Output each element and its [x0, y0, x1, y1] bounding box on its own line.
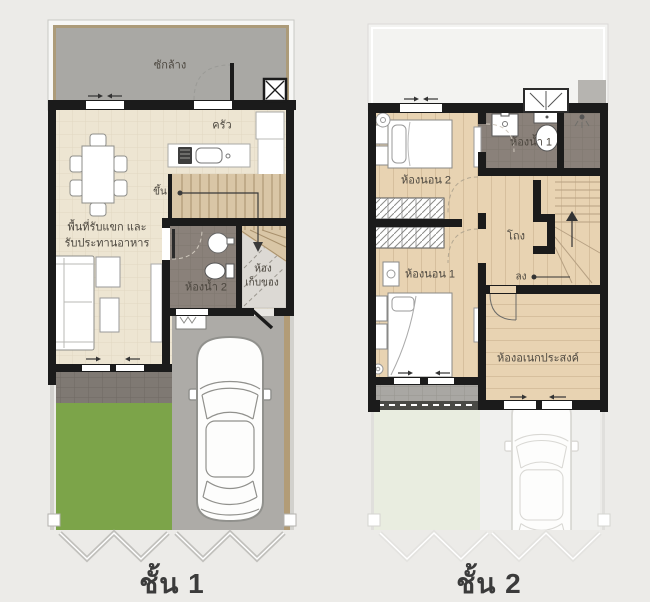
multipurpose-floor: [486, 294, 600, 400]
toilet-icon: [205, 263, 234, 279]
floorplan-canvas: ซักล้าง ครัว ขึ้น พื้นที่รับแขก และ รับป…: [0, 0, 650, 602]
fridge-icon: [256, 112, 284, 139]
floor2-plan: ห้องนอน 2 ห้องน้ำ 1 โถง ลง ห้องนอน 1 ห้อ…: [366, 17, 612, 602]
floor2-title: ชั้น 2: [366, 562, 612, 602]
terrace2: [374, 385, 478, 401]
kitchen-sink-icon: [196, 148, 222, 163]
living-dining-label-line2: รับประทานอาหาร: [65, 237, 150, 252]
stairs-down-label: ลง: [515, 270, 526, 285]
floor2-drawing: [366, 17, 612, 602]
open-to-below-area: [368, 24, 608, 110]
car-icon: [189, 337, 271, 521]
right-fence-line: [290, 316, 294, 530]
left-fence-line: [50, 385, 54, 530]
bedroom1-label: ห้องนอน 1: [405, 268, 455, 283]
laundry-sliding-door: [86, 101, 124, 109]
bathroom2-room: [170, 226, 236, 308]
multipurpose-window-1: [504, 401, 536, 409]
fan-icon-bedroom2: [376, 113, 390, 127]
living-dining-label-line1: พื้นที่รับแขก และ: [68, 221, 147, 236]
gate-post-left: [48, 514, 60, 526]
floor1-drawing: [46, 17, 298, 602]
kitchen-label: ครัว: [212, 119, 231, 134]
lawn: [56, 403, 172, 530]
bathroom1-label: ห้องน้ำ 1: [510, 136, 552, 151]
bedroom2-label: ห้องนอน 2: [401, 174, 451, 189]
gate-post-left2: [368, 514, 380, 526]
driveway-fence: [284, 316, 290, 530]
stairs-up-label: ขึ้น: [153, 185, 167, 200]
stairs-down-marker: [532, 275, 537, 280]
hall-label: โถง: [507, 230, 525, 245]
laundry-label: ซักล้าง: [154, 59, 186, 74]
folding-gate-left: [60, 533, 168, 559]
bathroom1-window: [524, 89, 568, 112]
multipurpose-label: ห้องอเนกประสงค์: [497, 352, 579, 367]
gate-post-right: [284, 514, 296, 526]
living-window-1: [82, 365, 110, 371]
bathroom2-window: [176, 309, 208, 315]
multipurpose-door-opening: [490, 286, 516, 293]
bedroom2-window: [400, 104, 442, 112]
laundry-door-opening: [194, 101, 232, 109]
storage-label-line1: ห้อง: [254, 262, 271, 277]
ghost-lawn: [374, 410, 480, 530]
washbasin1-icon: [492, 110, 518, 136]
coffee-table-icon: [96, 257, 120, 287]
multipurpose-window-2: [542, 401, 572, 409]
bathroom2-door-leaf: [172, 229, 175, 259]
sofa-icon: [54, 256, 94, 350]
gate-post-right2: [598, 514, 610, 526]
bathroom2-door-opening: [162, 228, 170, 260]
terrace: [56, 372, 172, 403]
living-window-2: [116, 365, 144, 371]
bedroom1-window-2: [428, 378, 454, 384]
living-door-leaf: [151, 264, 162, 342]
nightstand-icon: [383, 262, 399, 286]
floor1-plan: ซักล้าง ครัว ขึ้น พื้นที่รับแขก และ รับป…: [46, 17, 298, 602]
bed-single-icon: [374, 120, 452, 168]
folding-gate-right: [176, 533, 284, 559]
laundry-door-leaf: [230, 63, 234, 101]
floor1-title: ชั้น 1: [46, 562, 298, 602]
bedroom1-window-1: [394, 378, 420, 384]
bathroom2-label: ห้องน้ำ 2: [185, 281, 227, 296]
side-table-icon: [100, 298, 119, 332]
storage-label-line2: เก็บของ: [245, 276, 279, 291]
shaft-icon: [264, 79, 286, 101]
